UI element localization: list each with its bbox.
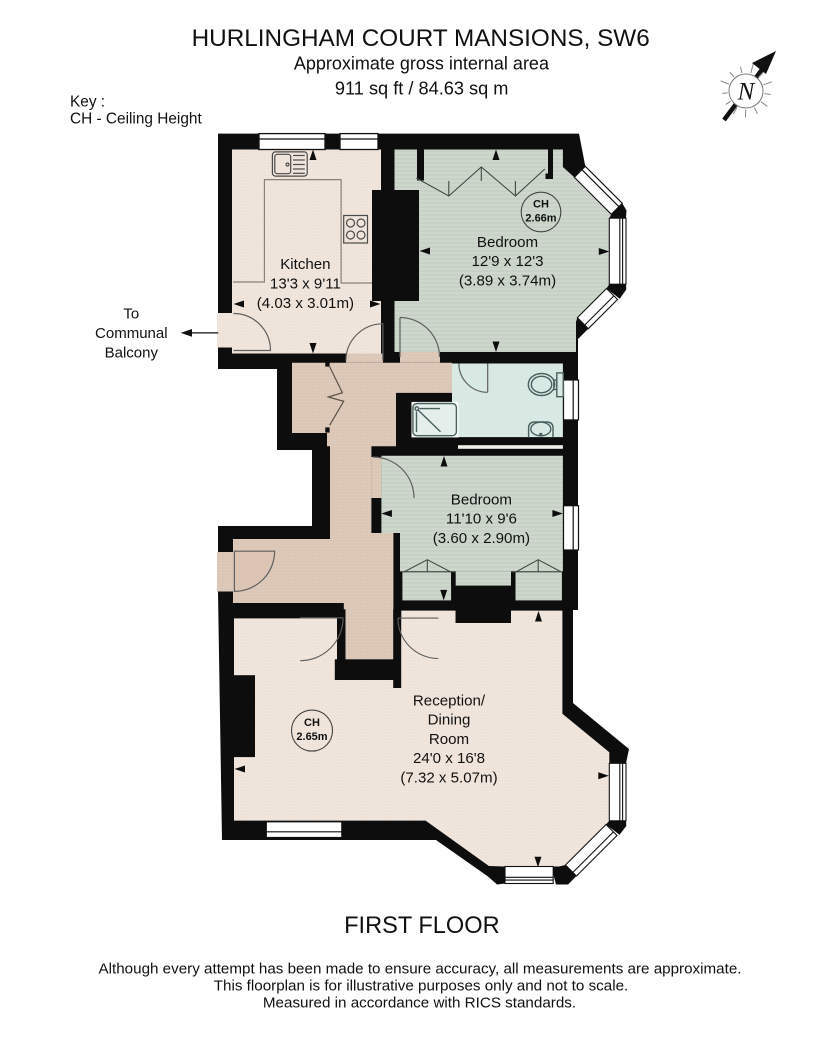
svg-text:Dining: Dining xyxy=(428,712,471,729)
svg-text:Room: Room xyxy=(429,731,469,748)
svg-text:Approximate gross internal are: Approximate gross internal area xyxy=(294,53,550,73)
svg-text:N: N xyxy=(737,79,756,106)
svg-text:CH: CH xyxy=(304,717,320,729)
svg-text:2.66m: 2.66m xyxy=(525,212,556,224)
svg-text:(3.89 x 3.74m): (3.89 x 3.74m) xyxy=(459,272,556,289)
svg-text:Communal: Communal xyxy=(95,325,168,342)
svg-text:13'3 x 9'11: 13'3 x 9'11 xyxy=(270,276,341,293)
svg-text:(3.60 x 2.90m): (3.60 x 2.90m) xyxy=(433,530,530,547)
svg-text:CH: CH xyxy=(533,198,549,210)
svg-text:11'10 x 9'6: 11'10 x 9'6 xyxy=(446,511,517,528)
svg-text:12'9 x 12'3: 12'9 x 12'3 xyxy=(471,253,543,270)
svg-text:Kitchen: Kitchen xyxy=(280,256,330,273)
svg-text:This floorplan is for illustra: This floorplan is for illustrative purpo… xyxy=(214,978,629,995)
svg-text:911 sq ft / 84.63 sq m: 911 sq ft / 84.63 sq m xyxy=(335,78,509,98)
svg-text:HURLINGHAM COURT MANSIONS, SW6: HURLINGHAM COURT MANSIONS, SW6 xyxy=(192,25,650,52)
svg-text:2.65m: 2.65m xyxy=(296,731,327,743)
svg-text:Measured in accordance with RI: Measured in accordance with RICS standar… xyxy=(263,995,576,1012)
svg-text:To: To xyxy=(123,305,139,322)
svg-text:24'0 x 16'8: 24'0 x 16'8 xyxy=(413,750,485,767)
svg-text:Key :: Key : xyxy=(70,94,105,111)
svg-text:(4.03 x 3.01m): (4.03 x 3.01m) xyxy=(257,295,354,312)
svg-text:Bedroom: Bedroom xyxy=(477,234,538,251)
svg-text:Bedroom: Bedroom xyxy=(451,492,512,509)
svg-text:Reception/: Reception/ xyxy=(413,693,486,710)
svg-text:(7.32 x 5.07m): (7.32 x 5.07m) xyxy=(400,769,497,786)
svg-text:CH - Ceiling Height: CH - Ceiling Height xyxy=(70,111,202,128)
svg-text:Balcony: Balcony xyxy=(105,345,159,362)
svg-text:FIRST FLOOR: FIRST FLOOR xyxy=(344,913,500,939)
svg-text:Although every attempt has bee: Although every attempt has been made to … xyxy=(99,960,742,977)
